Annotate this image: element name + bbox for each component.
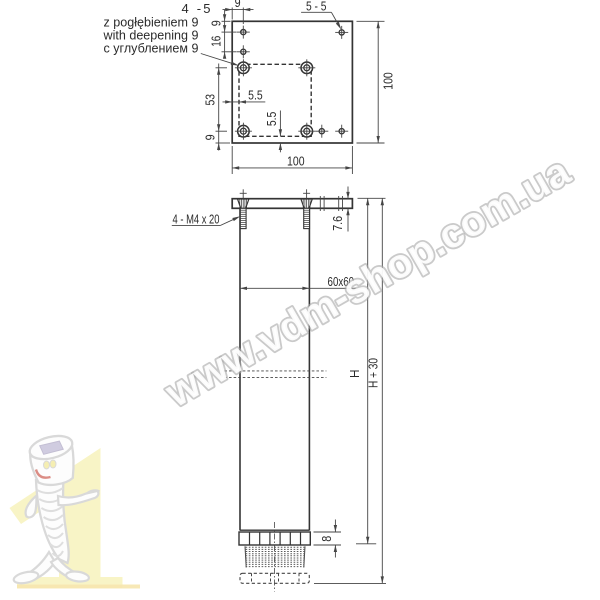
svg-text:9: 9	[235, 0, 241, 10]
svg-text:8: 8	[320, 536, 334, 542]
svg-text:16: 16	[209, 36, 223, 47]
svg-text:4 - M4 x 20: 4 - M4 x 20	[173, 211, 220, 226]
svg-text:9: 9	[203, 134, 217, 140]
svg-text:7.6: 7.6	[331, 216, 345, 231]
svg-text:5 - 5: 5 - 5	[306, 0, 327, 13]
svg-text:H + 30: H + 30	[366, 358, 380, 388]
svg-text:с углублением 9: с углублением 9	[104, 41, 199, 56]
svg-text:5.5: 5.5	[248, 88, 263, 102]
svg-text:5.5: 5.5	[265, 112, 279, 127]
svg-text:100: 100	[382, 72, 396, 90]
svg-text:9: 9	[210, 20, 224, 26]
svg-text:53: 53	[203, 94, 217, 106]
svg-text:H: H	[348, 370, 362, 379]
svg-text:100: 100	[287, 154, 305, 168]
